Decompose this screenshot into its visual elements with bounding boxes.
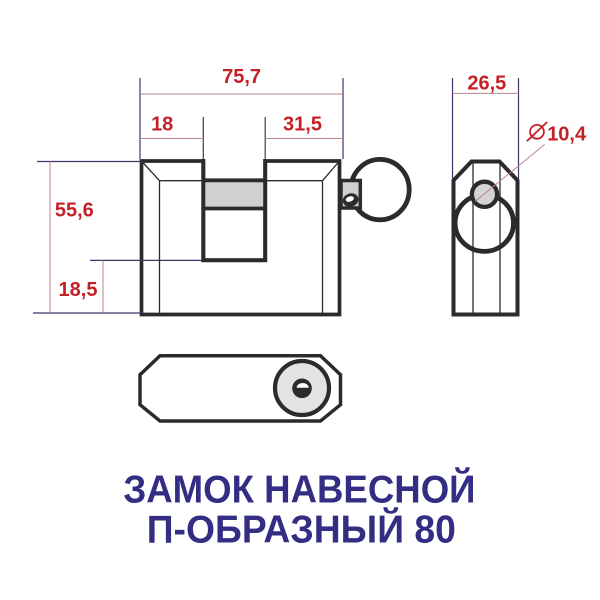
svg-text:26,5: 26,5: [467, 72, 506, 94]
svg-text:П-ОБРАЗНЫЙ 80: П-ОБРАЗНЫЙ 80: [147, 506, 456, 552]
svg-text:18,5: 18,5: [59, 279, 98, 301]
svg-text:75,7: 75,7: [222, 66, 261, 88]
svg-text:18: 18: [151, 113, 173, 135]
svg-text:31,5: 31,5: [283, 113, 322, 135]
svg-text:10,4: 10,4: [547, 124, 587, 146]
svg-text:55,6: 55,6: [55, 200, 94, 222]
svg-text:ЗАМОК НАВЕСНОЙ: ЗАМОК НАВЕСНОЙ: [123, 467, 475, 511]
